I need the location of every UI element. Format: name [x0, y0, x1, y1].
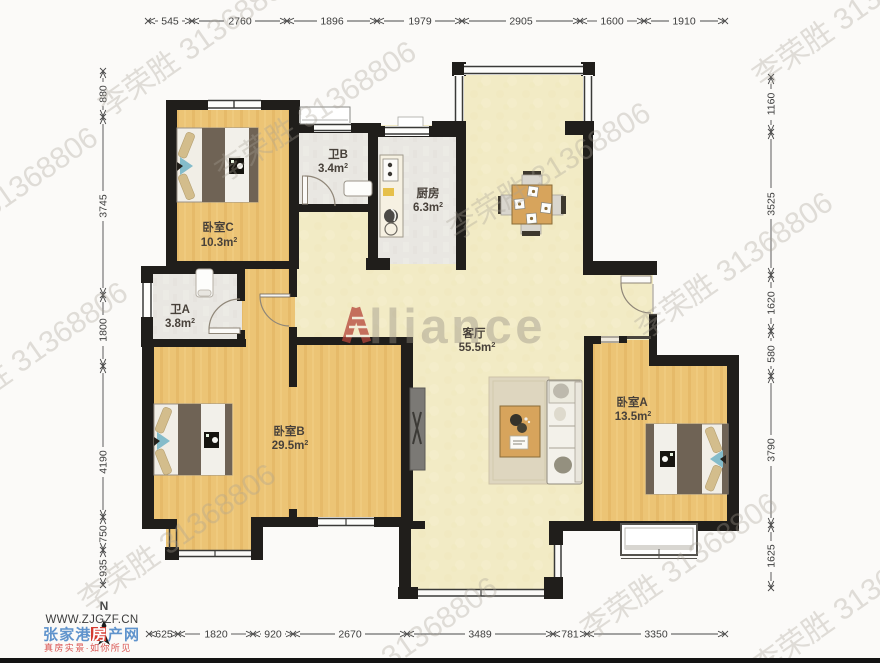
- svg-text:1600: 1600: [600, 16, 624, 28]
- svg-text:1820: 1820: [204, 629, 228, 641]
- svg-text:1160: 1160: [766, 93, 778, 116]
- svg-text:3790: 3790: [766, 438, 778, 462]
- svg-text:750: 750: [98, 525, 110, 543]
- svg-text:3350: 3350: [644, 629, 668, 641]
- svg-text:卧室A: 卧室A: [616, 395, 647, 409]
- svg-text:卧室B: 卧室B: [273, 424, 304, 438]
- svg-text:张家港房产网: 张家港房产网: [43, 626, 140, 644]
- svg-text:卧室C: 卧室C: [202, 220, 233, 234]
- svg-text:781: 781: [561, 629, 579, 641]
- svg-text:3745: 3745: [98, 194, 110, 218]
- svg-text:卫A: 卫A: [170, 303, 190, 316]
- svg-text:3.8m2: 3.8m2: [165, 318, 195, 330]
- svg-text:29.5m2: 29.5m2: [272, 440, 309, 452]
- svg-text:lliance: lliance: [369, 300, 546, 354]
- svg-text:3489: 3489: [468, 629, 492, 641]
- svg-text:580: 580: [766, 345, 778, 363]
- svg-text:1979: 1979: [408, 16, 432, 28]
- svg-text:3.4m2: 3.4m2: [318, 163, 348, 175]
- svg-text:10.3m2: 10.3m2: [201, 237, 238, 249]
- svg-text:1896: 1896: [320, 16, 344, 28]
- svg-text:13.5m2: 13.5m2: [615, 411, 652, 423]
- svg-text:2905: 2905: [509, 16, 533, 28]
- svg-text:625: 625: [155, 629, 173, 641]
- svg-text:卫B: 卫B: [328, 148, 348, 161]
- svg-text:6.3m2: 6.3m2: [413, 202, 443, 214]
- svg-text:4190: 4190: [98, 450, 110, 474]
- svg-text:N: N: [100, 599, 109, 613]
- svg-text:厨房: 厨房: [417, 186, 440, 200]
- svg-text:真房实景·如你所见: 真房实景·如你所见: [44, 642, 132, 653]
- svg-text:920: 920: [264, 629, 282, 641]
- svg-text:1910: 1910: [672, 16, 696, 28]
- svg-text:2670: 2670: [338, 629, 362, 641]
- svg-text:3525: 3525: [766, 192, 778, 216]
- svg-text:1625: 1625: [766, 544, 778, 568]
- svg-text:545: 545: [161, 16, 179, 28]
- svg-text:1620: 1620: [766, 291, 778, 315]
- svg-text:WWW.ZJGZF.CN: WWW.ZJGZF.CN: [45, 614, 138, 626]
